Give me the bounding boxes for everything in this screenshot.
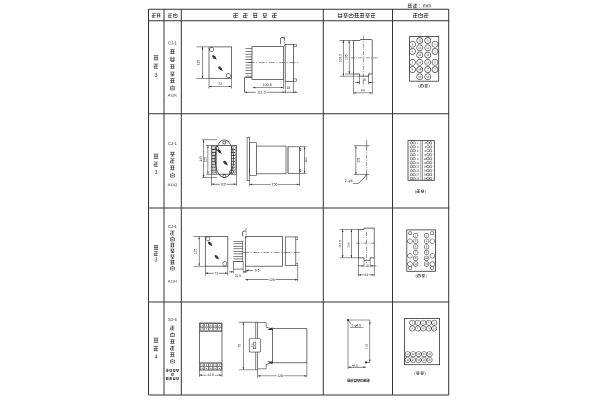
svg-text:11: 11 bbox=[416, 161, 419, 165]
svg-text:φ6: φ6 bbox=[349, 179, 353, 183]
svg-text:14: 14 bbox=[424, 165, 427, 169]
svg-text:128: 128 bbox=[277, 374, 283, 378]
svg-text:132: 132 bbox=[364, 344, 368, 349]
svg-text:A11K: A11K bbox=[168, 93, 178, 98]
svg-text:105: 105 bbox=[345, 54, 349, 60]
svg-text:A11H: A11H bbox=[168, 280, 177, 284]
svg-text:20: 20 bbox=[424, 177, 427, 181]
svg-text:72: 72 bbox=[218, 82, 222, 86]
svg-text:15: 15 bbox=[286, 86, 290, 90]
svg-text:18: 18 bbox=[424, 173, 427, 177]
svg-text:64: 64 bbox=[361, 89, 365, 93]
svg-text:16: 16 bbox=[362, 78, 366, 82]
svg-text:64: 64 bbox=[364, 273, 368, 277]
svg-text:115: 115 bbox=[194, 249, 198, 255]
svg-text:109.5: 109.5 bbox=[339, 54, 343, 62]
svg-text:10: 10 bbox=[424, 157, 427, 161]
svg-text:CJ-1: CJ-1 bbox=[168, 224, 178, 229]
svg-text:2-φ4.5: 2-φ4.5 bbox=[352, 324, 362, 328]
svg-text:156: 156 bbox=[271, 183, 277, 187]
svg-text:131: 131 bbox=[357, 157, 361, 163]
svg-text:16: 16 bbox=[424, 169, 427, 173]
svg-text:111.5: 111.5 bbox=[257, 90, 266, 94]
svg-text:13: 13 bbox=[416, 165, 419, 169]
svg-text:44.5: 44.5 bbox=[352, 363, 358, 367]
svg-text:3: 3 bbox=[155, 257, 158, 263]
svg-text:CJ-1: CJ-1 bbox=[168, 141, 178, 146]
svg-text:2-: 2- bbox=[345, 179, 348, 183]
svg-text:4: 4 bbox=[155, 355, 158, 361]
svg-text:145: 145 bbox=[199, 156, 203, 162]
svg-text:100.5: 100.5 bbox=[263, 83, 272, 87]
svg-text:12: 12 bbox=[424, 161, 427, 165]
svg-text:19: 19 bbox=[416, 177, 419, 181]
svg-text:CJ-1: CJ-1 bbox=[168, 41, 178, 46]
svg-text:15: 15 bbox=[416, 169, 419, 173]
svg-text:3: 3 bbox=[155, 170, 158, 176]
svg-text:3: 3 bbox=[155, 73, 158, 79]
svg-text:105: 105 bbox=[220, 182, 226, 186]
svg-text:16: 16 bbox=[365, 264, 369, 268]
svg-text:17: 17 bbox=[416, 173, 419, 177]
svg-text:72: 72 bbox=[214, 271, 218, 275]
svg-text:A11Q: A11Q bbox=[168, 182, 178, 187]
svg-text:107.5: 107.5 bbox=[338, 240, 342, 248]
svg-text:126: 126 bbox=[269, 278, 275, 282]
svg-text:31.5: 31.5 bbox=[235, 274, 242, 278]
svg-text:115: 115 bbox=[197, 60, 201, 66]
svg-text:106: 106 bbox=[347, 242, 351, 247]
svg-text:44.5: 44.5 bbox=[207, 373, 214, 377]
svg-text:SJ-4: SJ-4 bbox=[168, 317, 177, 322]
svg-text:75: 75 bbox=[237, 344, 241, 348]
svg-text:125: 125 bbox=[203, 157, 207, 163]
svg-text:9.5: 9.5 bbox=[255, 269, 260, 273]
svg-text:110: 110 bbox=[304, 157, 308, 162]
svg-text:：mm: ：mm bbox=[418, 4, 431, 10]
